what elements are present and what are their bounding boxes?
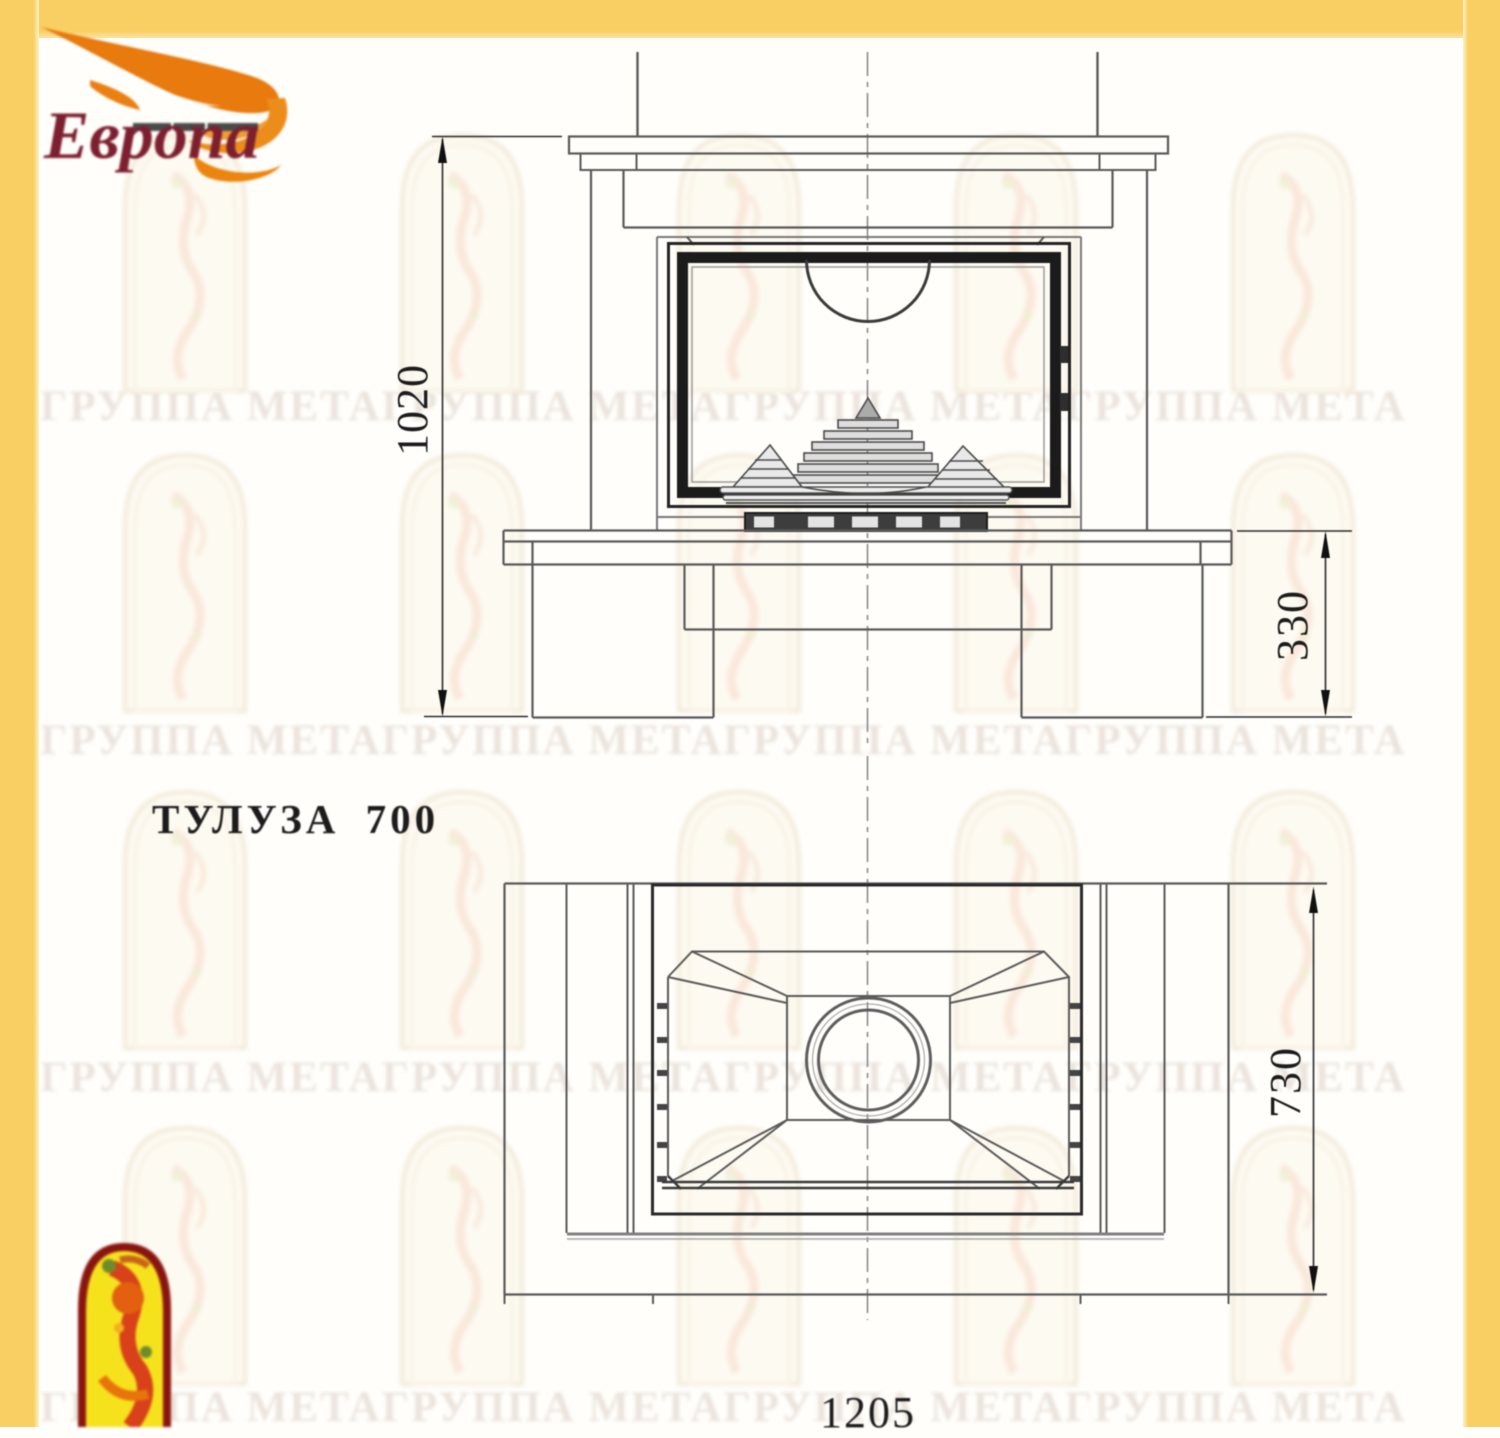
svg-text:Европа: Европа [43,97,260,173]
svg-text:330: 330 [1268,589,1317,661]
svg-text:1020: 1020 [388,364,437,456]
svg-text:730: 730 [1261,1046,1310,1118]
